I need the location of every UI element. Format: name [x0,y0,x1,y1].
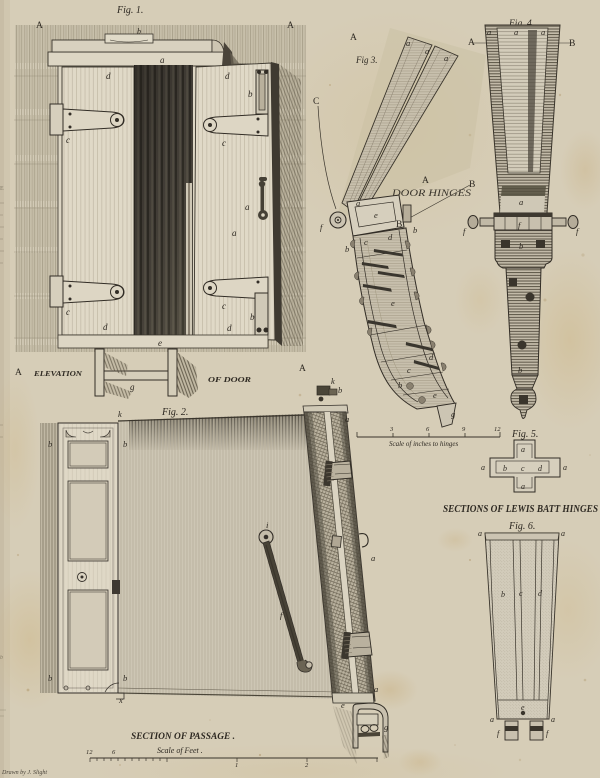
svg-text:b: b [123,439,127,449]
svg-text:c: c [364,237,368,247]
svg-text:b: b [501,590,505,599]
svg-text:a: a [521,482,525,491]
svg-text:e: e [158,338,162,348]
svg-text:Fig. 2.: Fig. 2. [161,407,188,418]
svg-text:c: c [519,589,523,598]
svg-text:Fig. 5.: Fig. 5. [511,429,538,440]
svg-text:SECTIONS OF LEWIS BATT HINGES: SECTIONS OF LEWIS BATT HINGES [443,504,598,515]
svg-text:g: g [130,382,135,392]
svg-text:E: E [0,186,4,192]
svg-text:b: b [519,241,523,251]
svg-text:b: b [250,312,255,322]
svg-text:Fig. 1.: Fig. 1. [116,5,143,16]
svg-text:d: d [106,71,111,81]
svg-text:k: k [331,376,335,386]
svg-text:a: a [371,553,375,563]
svg-text:x: x [118,695,123,705]
svg-text:B: B [569,39,575,49]
svg-text:a: a [160,55,165,65]
svg-text:e: e [433,390,437,400]
svg-text:a: a [425,46,429,56]
svg-text:a: a [406,38,410,48]
svg-text:12: 12 [86,749,93,756]
svg-text:a: a [345,414,349,424]
svg-text:b: b [137,27,141,36]
svg-text:OF DOOR: OF DOOR [208,376,251,384]
svg-text:Scale of Feet .: Scale of Feet . [157,746,203,755]
svg-text:d: d [103,322,108,332]
svg-text:c: c [407,365,411,375]
svg-text:a: a [444,53,448,63]
svg-text:A: A [287,21,294,31]
svg-text:a: a [374,684,378,694]
svg-text:C: C [313,97,319,107]
svg-text:Fig 3.: Fig 3. [355,55,378,65]
svg-text:A: A [350,33,357,43]
svg-text:c: c [521,464,525,473]
svg-text:k: k [118,409,122,419]
svg-text:Scale of inches to hinges: Scale of inches to hinges [389,440,458,448]
svg-text:A: A [422,176,429,186]
svg-text:c: c [222,138,226,148]
svg-text:a: a [551,715,555,724]
svg-text:B: B [396,220,402,230]
svg-text:Drawn by J. Slight: Drawn by J. Slight [1,770,47,776]
svg-text:b: b [413,225,417,235]
svg-text:1: 1 [235,762,238,769]
svg-text:a: a [563,463,567,472]
svg-text:A: A [299,364,306,374]
svg-text:b: b [123,673,127,683]
svg-text:a: a [478,529,482,538]
svg-text:12: 12 [494,426,501,433]
svg-text:e: e [391,298,395,308]
svg-text:ELEVATION: ELEVATION [33,370,83,378]
svg-text:b: b [48,673,52,683]
svg-text:DOOR HINGES: DOOR HINGES [391,188,472,198]
svg-text:b: b [248,89,253,99]
svg-text:b: b [338,385,342,395]
svg-text:c: c [66,135,70,145]
svg-text:Fig. 6.: Fig. 6. [508,521,535,532]
svg-text:e: e [341,700,345,710]
svg-text:g: g [384,722,388,732]
svg-text:a: a [514,27,518,37]
svg-text:SECTION OF PASSAGE .: SECTION OF PASSAGE . [131,731,235,741]
svg-text:a: a [481,463,485,472]
svg-text:b: b [48,439,52,449]
svg-text:a: a [521,445,525,454]
svg-text:b: b [345,244,349,254]
svg-text:e: e [521,703,525,712]
svg-text:d: d [225,71,230,81]
svg-text:a: a [519,197,523,207]
svg-text:a: a [356,198,360,208]
svg-text:b: b [0,655,3,661]
svg-text:a: a [245,202,250,212]
svg-text:b: b [503,464,507,473]
svg-text:e: e [374,210,378,220]
svg-text:d: d [227,323,232,333]
svg-text:A: A [36,21,43,31]
svg-text:b: b [518,365,522,375]
svg-text:g: g [451,409,455,419]
svg-text:a: a [487,27,491,37]
svg-text:a: a [232,228,237,238]
svg-text:a: a [541,27,545,37]
svg-text:a: a [490,715,494,724]
svg-text:a: a [561,529,565,538]
svg-text:A: A [15,368,22,378]
svg-text:b: b [398,380,402,390]
